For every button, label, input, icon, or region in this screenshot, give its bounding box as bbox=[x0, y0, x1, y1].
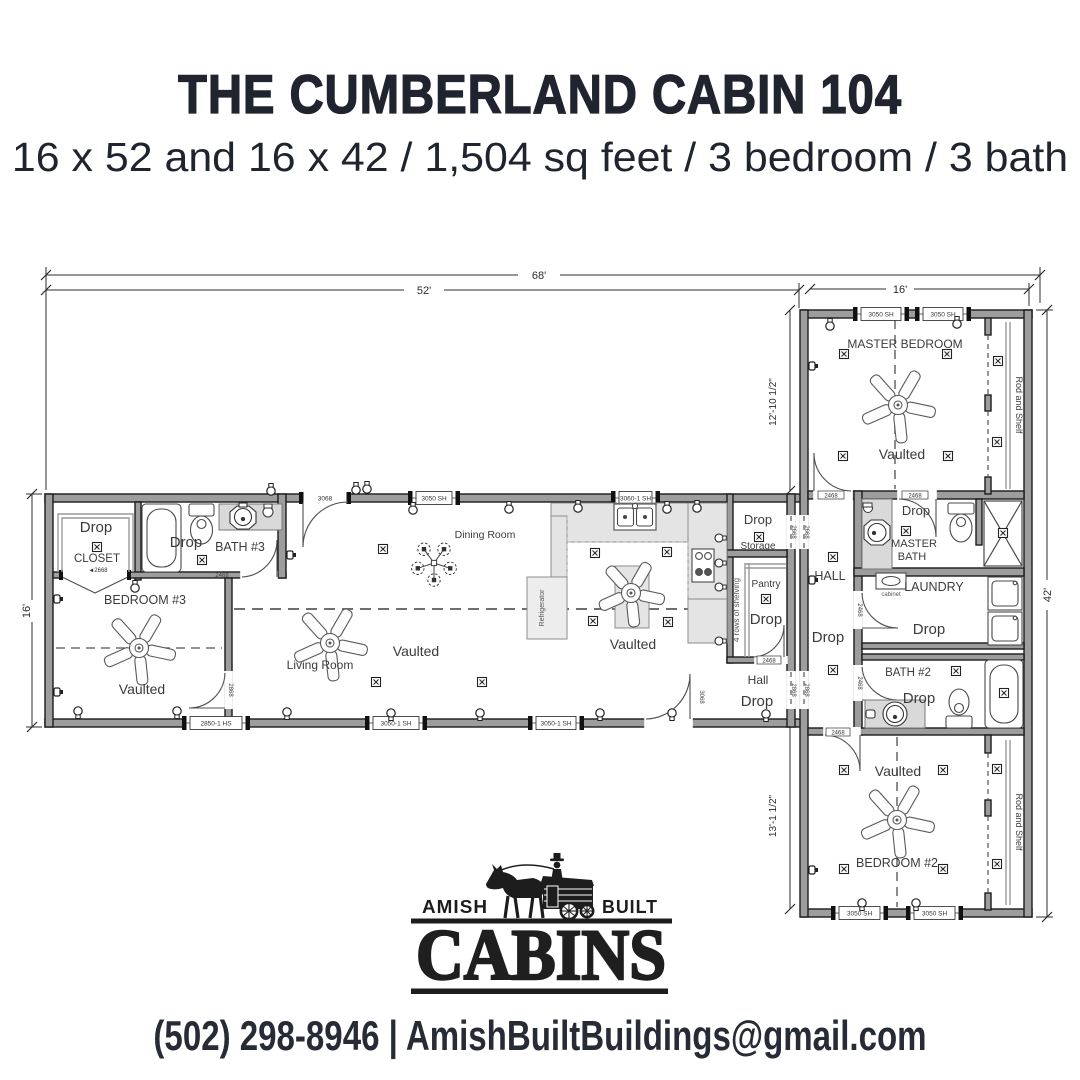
svg-text:Drop: Drop bbox=[170, 534, 203, 551]
svg-text:3050 SH: 3050 SH bbox=[868, 312, 894, 319]
svg-text:2668: 2668 bbox=[790, 525, 796, 539]
svg-text:MASTER BEDROOM: MASTER BEDROOM bbox=[847, 337, 962, 351]
svg-text:68': 68' bbox=[532, 270, 546, 282]
svg-text:3050 SH: 3050 SH bbox=[930, 312, 956, 319]
svg-text:Vaulted: Vaulted bbox=[393, 643, 439, 659]
svg-text:52': 52' bbox=[417, 285, 431, 297]
svg-text:BATH #3: BATH #3 bbox=[215, 540, 265, 554]
svg-text:16': 16' bbox=[21, 604, 33, 618]
svg-text:◄2668: ◄2668 bbox=[88, 568, 108, 574]
svg-text:cabinet: cabinet bbox=[881, 592, 901, 598]
svg-text:3050 SH: 3050 SH bbox=[421, 496, 447, 503]
svg-text:2868: 2868 bbox=[790, 683, 796, 697]
svg-text:12'-10 1/2": 12'-10 1/2" bbox=[768, 378, 779, 426]
svg-text:2468: 2468 bbox=[856, 603, 862, 617]
svg-text:3050 SH: 3050 SH bbox=[847, 911, 873, 918]
svg-text:BUILT: BUILT bbox=[602, 896, 658, 917]
svg-text:Drop: Drop bbox=[903, 690, 936, 707]
svg-text:Pantry: Pantry bbox=[752, 579, 781, 590]
svg-text:BATH #2: BATH #2 bbox=[885, 667, 931, 679]
svg-text:2850-1 HS: 2850-1 HS bbox=[200, 721, 232, 728]
svg-text:Vaulted: Vaulted bbox=[610, 636, 656, 652]
svg-text:BEDROOM #3: BEDROOM #3 bbox=[104, 593, 186, 607]
svg-text:AMISH: AMISH bbox=[422, 896, 488, 917]
svg-text:3050-1 SH: 3050-1 SH bbox=[380, 721, 411, 728]
svg-text:4 rows of shelving: 4 rows of shelving bbox=[732, 578, 741, 642]
svg-text:42': 42' bbox=[1042, 588, 1054, 602]
svg-text:Drop: Drop bbox=[812, 629, 845, 646]
svg-text:Dining Room: Dining Room bbox=[455, 529, 516, 541]
svg-text:Rod and Shelf: Rod and Shelf bbox=[1014, 793, 1024, 851]
svg-text:Rod and Shelf: Rod and Shelf bbox=[1014, 376, 1024, 434]
svg-text:MASTER: MASTER bbox=[891, 538, 937, 550]
svg-text:Drop: Drop bbox=[744, 512, 772, 527]
svg-text:2468: 2468 bbox=[856, 676, 862, 690]
svg-text:Vaulted: Vaulted bbox=[879, 446, 925, 462]
svg-text:Drop: Drop bbox=[80, 519, 113, 536]
svg-text:2868: 2868 bbox=[227, 683, 233, 697]
svg-text:2468: 2468 bbox=[215, 573, 229, 579]
svg-text:2468: 2468 bbox=[831, 731, 845, 737]
svg-text:CABINS: CABINS bbox=[416, 915, 666, 995]
svg-text:Drop: Drop bbox=[913, 621, 946, 638]
svg-text:Drop: Drop bbox=[902, 503, 930, 518]
svg-text:2468: 2468 bbox=[824, 494, 838, 500]
svg-text:LAUNDRY: LAUNDRY bbox=[904, 580, 964, 594]
svg-text:CLOSET: CLOSET bbox=[74, 553, 120, 565]
svg-text:Drop: Drop bbox=[750, 611, 783, 628]
svg-text:Living Room: Living Room bbox=[287, 658, 354, 672]
svg-text:16': 16' bbox=[893, 284, 907, 296]
svg-text:3050 SH: 3050 SH bbox=[922, 911, 948, 918]
svg-text:3060-1 SH: 3060-1 SH bbox=[620, 496, 651, 503]
svg-text:HALL: HALL bbox=[814, 569, 845, 583]
svg-text:13'-1 1/2": 13'-1 1/2" bbox=[768, 794, 779, 837]
svg-text:Vaulted: Vaulted bbox=[119, 681, 165, 697]
svg-text:3050-1 SH: 3050-1 SH bbox=[540, 721, 571, 728]
svg-text:3068: 3068 bbox=[698, 690, 704, 704]
svg-text:2868: 2868 bbox=[803, 683, 809, 697]
svg-text:Refrigerator: Refrigerator bbox=[539, 589, 546, 627]
svg-text:BATH: BATH bbox=[898, 551, 927, 563]
svg-text:BEDROOM #2: BEDROOM #2 bbox=[856, 856, 938, 870]
svg-text:3068: 3068 bbox=[318, 496, 333, 503]
svg-text:2668: 2668 bbox=[803, 525, 809, 539]
svg-text:Drop: Drop bbox=[741, 693, 774, 710]
svg-text:Storage: Storage bbox=[740, 541, 775, 552]
svg-text:Vaulted: Vaulted bbox=[875, 763, 921, 779]
svg-text:Hall: Hall bbox=[748, 673, 769, 687]
svg-text:2468: 2468 bbox=[908, 494, 922, 500]
svg-text:2468: 2468 bbox=[762, 659, 776, 665]
